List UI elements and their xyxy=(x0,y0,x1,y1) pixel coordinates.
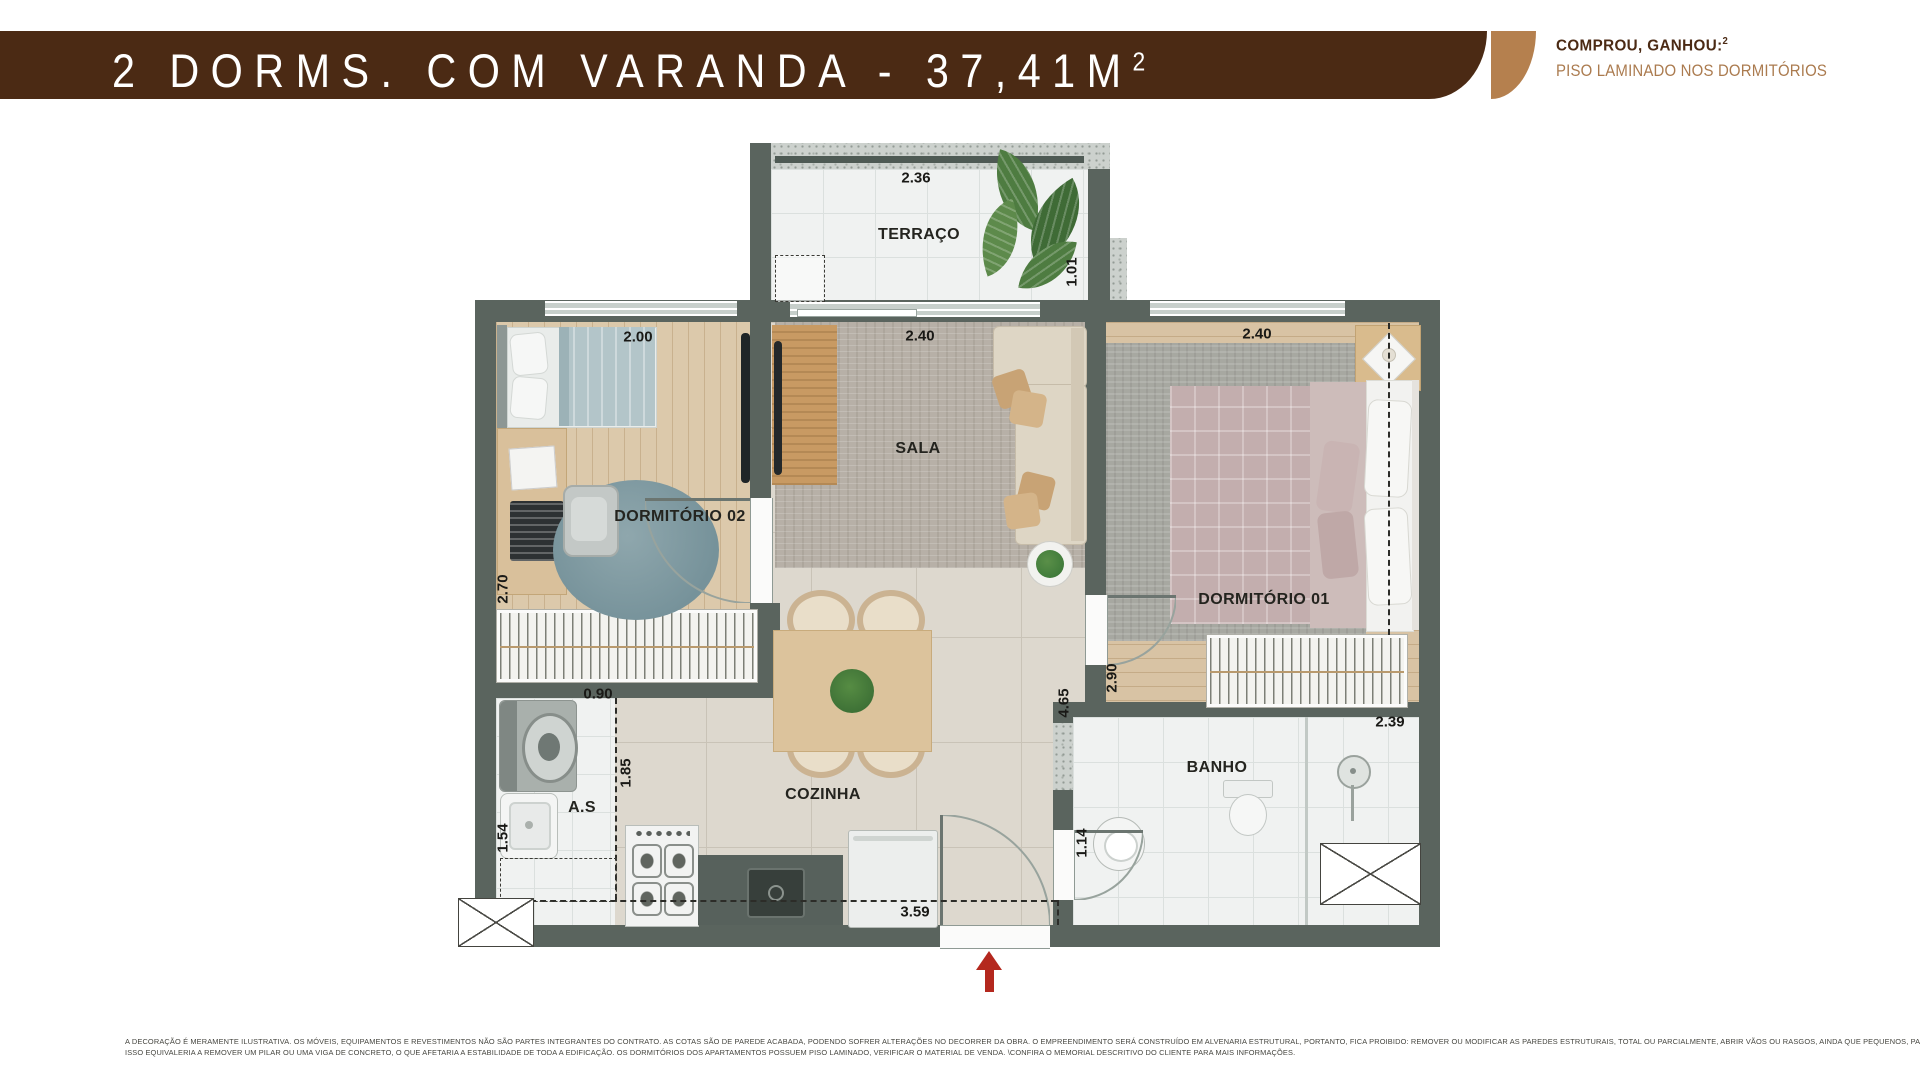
washer-drum xyxy=(538,733,560,761)
dim-terrace-width: 2.36 xyxy=(901,170,930,187)
dim-bedroom1-width: 2.40 xyxy=(1242,326,1271,343)
dim-bedroom1-depth: 2.90 xyxy=(1104,663,1121,692)
sofa xyxy=(993,326,1085,543)
room-label-bathroom: BANHO xyxy=(1187,759,1248,777)
closet-rod xyxy=(500,646,754,648)
disclaimer-line1: A DECORAÇÃO É MERAMENTE ILUSTRATIVA. OS … xyxy=(125,1037,1920,1046)
entrance-arrow-icon xyxy=(976,951,1002,970)
bed1-headboard xyxy=(1412,380,1419,630)
wall xyxy=(1085,322,1106,595)
stove-knobs xyxy=(634,829,690,838)
side-table xyxy=(1027,541,1073,587)
page-title-text: 2 DORMS. COM VARANDA - 37,41M xyxy=(112,44,1132,97)
pillow xyxy=(509,331,549,377)
entrance-door xyxy=(940,925,1050,949)
washer-panel xyxy=(500,701,517,791)
notebook xyxy=(509,445,558,490)
wall xyxy=(750,143,771,322)
projection-line xyxy=(1388,323,1390,635)
room-label-living: SALA xyxy=(895,440,940,458)
dim-terrace-side: 1.01 xyxy=(1064,257,1081,286)
shaft-box xyxy=(458,898,534,947)
tv-bedroom2 xyxy=(741,333,750,483)
shower-head xyxy=(1337,755,1371,789)
drain-icon xyxy=(525,821,533,829)
door-bathroom xyxy=(1053,830,1075,900)
room-label-bedroom2: DORMITÓRIO 02 xyxy=(614,508,745,526)
page-title-sup: 2 xyxy=(1132,46,1146,76)
dim-bathroom-depth: 1.14 xyxy=(1074,828,1091,857)
room-label-laundry: A.S xyxy=(568,799,596,817)
shower-glass xyxy=(1305,717,1308,925)
pillow xyxy=(509,376,549,421)
promo-title-sup: 2 xyxy=(1723,36,1729,47)
dim-laundry-depth: 1.54 xyxy=(495,823,512,852)
plant xyxy=(830,669,874,713)
projection-box xyxy=(500,858,617,902)
door-bedroom1 xyxy=(1085,595,1108,665)
promo-block: COMPROU, GANHOU:2 PISO LAMINADO NOS DORM… xyxy=(1556,36,1864,81)
room-label-kitchen: COZINHA xyxy=(785,786,861,804)
dim-kitchen-width: 3.59 xyxy=(900,904,929,921)
closet-bedroom2 xyxy=(497,610,757,682)
arrow-head xyxy=(976,951,1002,970)
burner xyxy=(664,882,694,916)
shower-arm xyxy=(1351,785,1354,821)
bed2-headboard xyxy=(497,325,507,428)
window-bedroom2 xyxy=(545,301,737,316)
dim-bathroom-width: 2.39 xyxy=(1375,714,1404,731)
wall xyxy=(750,322,771,498)
door-arc-bedroom1 xyxy=(1106,595,1176,665)
banner-accent-shape xyxy=(1491,31,1536,99)
desk-chair xyxy=(563,485,619,557)
dim-kitchen-depth: 4.65 xyxy=(1056,688,1073,717)
room-label-terrace: TERRAÇO xyxy=(878,226,960,244)
dim-laundry-width: 0.90 xyxy=(583,686,612,703)
closet-bedroom1 xyxy=(1207,635,1407,707)
dim-bedroom2-width: 2.00 xyxy=(623,329,652,346)
plant xyxy=(1036,550,1064,578)
burner xyxy=(632,882,662,916)
room-label-bedroom1: DORMITÓRIO 01 xyxy=(1198,591,1329,609)
disclaimer-line2: ISSO EQUIVALERIA A REMOVER UM PILAR OU U… xyxy=(125,1048,1295,1057)
dining-table xyxy=(773,630,932,752)
arrow-stem xyxy=(985,969,994,992)
shaft-box xyxy=(1320,843,1421,905)
wall xyxy=(475,300,496,947)
pillow xyxy=(1003,492,1041,530)
dim-bedroom2-depth: 2.70 xyxy=(495,574,512,603)
closet-rod xyxy=(1210,671,1404,673)
fridge-handle xyxy=(853,836,933,841)
promo-title-text: COMPROU, GANHOU: xyxy=(1556,37,1723,54)
pillow xyxy=(1317,510,1360,579)
faucet-icon xyxy=(768,885,784,901)
kitchen-counter xyxy=(698,855,843,925)
wall xyxy=(1053,900,1073,925)
bed1-quilt xyxy=(1170,386,1330,624)
title-banner: 2 DORMS. COM VARANDA - 37,41M2 xyxy=(0,31,1487,99)
sliding-door-panel xyxy=(797,309,917,317)
shower-dot xyxy=(1350,768,1356,774)
bed2-blanket-edge xyxy=(559,327,569,426)
terrace-door-projection xyxy=(775,255,825,302)
dim-living-width: 2.40 xyxy=(905,328,934,345)
promo-subtitle: PISO LAMINADO NOS DORMITÓRIOS xyxy=(1556,61,1827,81)
burner xyxy=(664,844,694,878)
wall xyxy=(1419,300,1440,947)
stove xyxy=(625,825,699,927)
wall-shaft xyxy=(1053,723,1073,790)
sofa-backrest xyxy=(1071,328,1084,541)
pillow xyxy=(1008,389,1047,428)
door-bedroom2 xyxy=(750,498,773,603)
toilet-bowl xyxy=(1229,794,1267,836)
burner xyxy=(632,844,662,878)
washing-machine xyxy=(499,700,577,792)
promo-title: COMPROU, GANHOU:2 xyxy=(1556,36,1849,55)
floor-plan: TERRAÇO SALA DORMITÓRIO 02 DORMITÓRIO 01… xyxy=(475,143,1440,1009)
chair-seat xyxy=(571,497,607,541)
dim-laundry-kitchen: 1.85 xyxy=(618,758,635,787)
toilet xyxy=(1223,780,1271,834)
page-title: 2 DORMS. COM VARANDA - 37,41M2 xyxy=(112,43,1147,98)
projection-line xyxy=(1057,900,1059,925)
door-arc-entrance xyxy=(940,815,1050,925)
wall-pilaster xyxy=(1110,238,1127,300)
tv-living xyxy=(774,341,782,475)
window-bedroom1 xyxy=(1150,301,1345,316)
